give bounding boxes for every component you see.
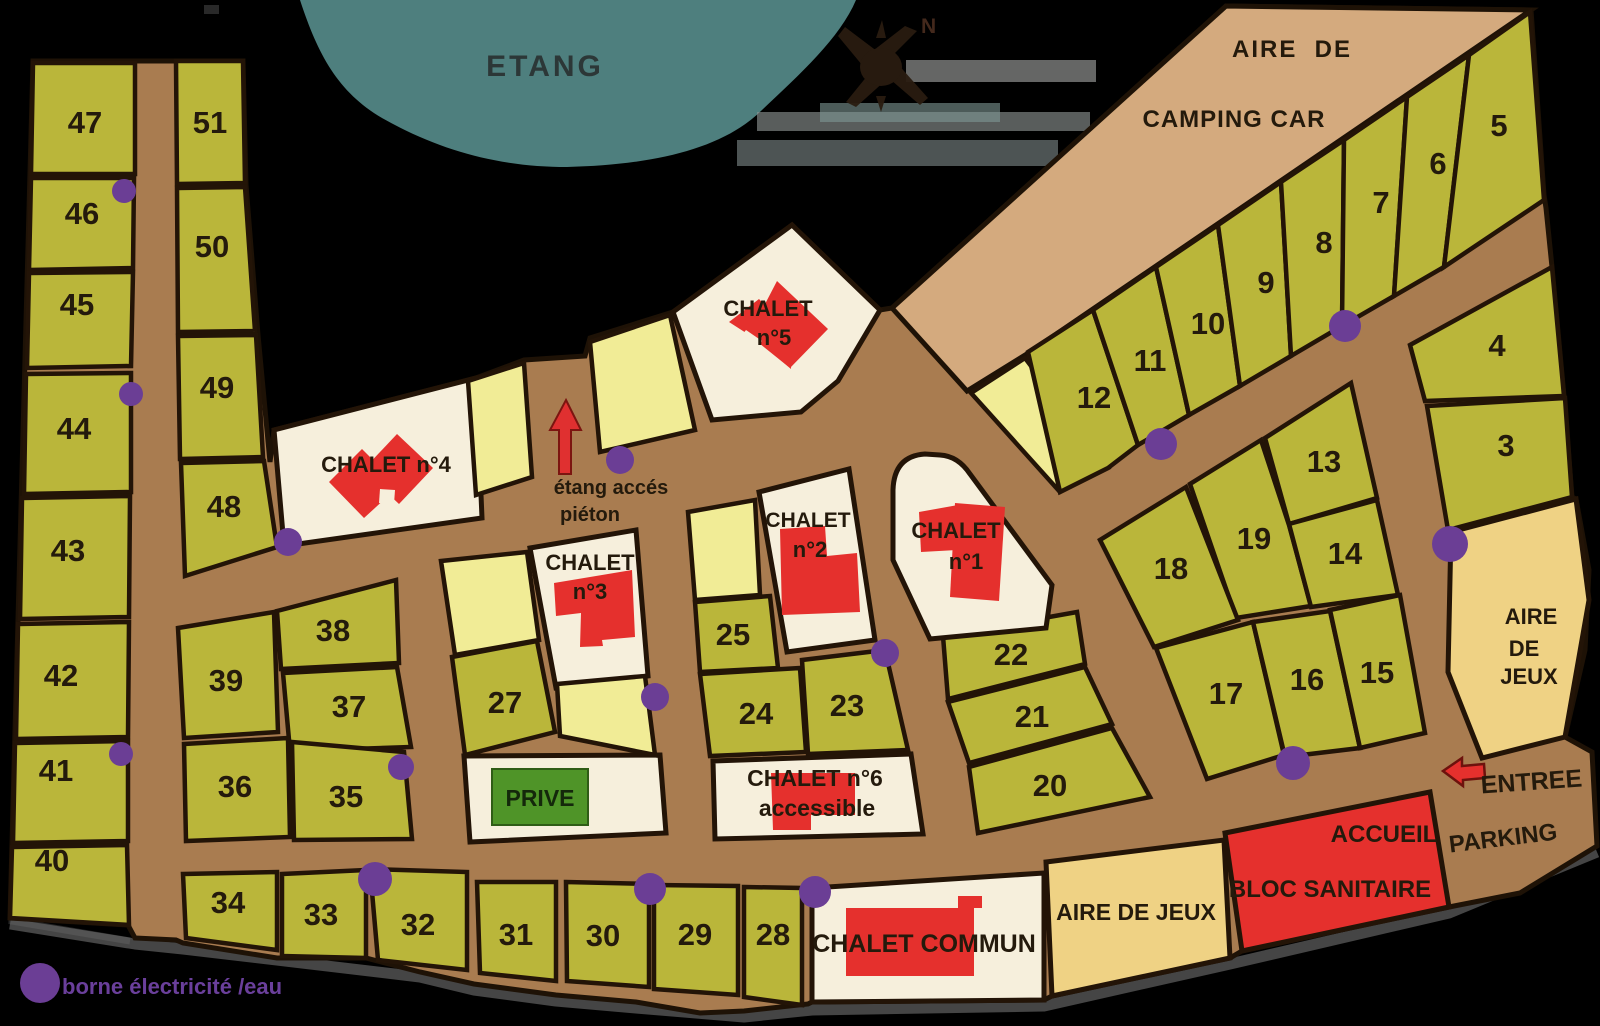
svg-text:CHALET: CHALET	[545, 550, 635, 575]
svg-text:n°2: n°2	[793, 537, 827, 562]
svg-text:CHALET: CHALET	[765, 509, 850, 532]
svg-text:5: 5	[1490, 108, 1507, 143]
svg-text:31: 31	[499, 917, 533, 952]
svg-text:42: 42	[44, 658, 78, 693]
svg-text:22: 22	[994, 637, 1028, 672]
svg-text:29: 29	[678, 917, 712, 952]
svg-text:10: 10	[1191, 306, 1225, 341]
svg-text:CHALET: CHALET	[723, 296, 813, 321]
svg-text:étang accés: étang accés	[554, 477, 669, 499]
svg-text:17: 17	[1209, 676, 1243, 711]
svg-text:41: 41	[39, 753, 73, 788]
svg-text:33: 33	[304, 897, 338, 932]
svg-text:CHALET n°4: CHALET n°4	[321, 452, 452, 477]
svg-text:CAMPING CAR: CAMPING CAR	[1143, 106, 1326, 133]
svg-text:n°1: n°1	[949, 549, 983, 574]
svg-text:n°5: n°5	[757, 325, 791, 350]
svg-text:25: 25	[716, 617, 750, 652]
svg-text:49: 49	[200, 370, 234, 405]
svg-text:45: 45	[60, 287, 94, 322]
svg-text:19: 19	[1237, 521, 1271, 556]
svg-text:18: 18	[1154, 551, 1188, 586]
svg-text:8: 8	[1315, 225, 1332, 260]
svg-text:borne électricité /eau: borne électricité /eau	[62, 974, 282, 999]
svg-text:AIRE DE JEUX: AIRE DE JEUX	[1056, 899, 1216, 925]
svg-text:44: 44	[57, 411, 92, 446]
svg-text:47: 47	[68, 105, 102, 140]
svg-text:PRIVE: PRIVE	[505, 785, 574, 811]
svg-text:23: 23	[830, 688, 864, 723]
svg-text:30: 30	[586, 918, 620, 953]
svg-text:38: 38	[316, 613, 350, 648]
svg-text:DE: DE	[1509, 636, 1540, 661]
svg-text:15: 15	[1360, 655, 1394, 690]
svg-text:CHALET: CHALET	[911, 518, 1001, 543]
svg-text:28: 28	[756, 917, 790, 952]
svg-text:27: 27	[488, 685, 522, 720]
svg-text:34: 34	[211, 885, 246, 920]
svg-text:11: 11	[1134, 343, 1167, 378]
svg-text:37: 37	[332, 689, 366, 724]
svg-text:AIRE: AIRE	[1505, 604, 1558, 629]
svg-text:12: 12	[1077, 380, 1111, 415]
svg-text:35: 35	[329, 779, 363, 814]
svg-text:piéton: piéton	[560, 504, 620, 526]
svg-text:BLOC SANITAIRE: BLOC SANITAIRE	[1229, 876, 1431, 903]
svg-text:43: 43	[51, 533, 85, 568]
svg-text:CHALET COMMUN: CHALET COMMUN	[812, 930, 1036, 958]
svg-text:6: 6	[1429, 146, 1446, 181]
svg-text:9: 9	[1257, 265, 1274, 300]
svg-text:13: 13	[1307, 444, 1341, 479]
svg-text:3: 3	[1497, 428, 1514, 463]
svg-text:40: 40	[35, 843, 69, 878]
svg-text:32: 32	[401, 907, 435, 942]
svg-text:48: 48	[207, 489, 241, 524]
svg-text:21: 21	[1015, 699, 1049, 734]
svg-text:ACCUEIL: ACCUEIL	[1331, 821, 1438, 848]
svg-text:N: N	[921, 15, 936, 38]
svg-text:46: 46	[65, 196, 99, 231]
svg-text:AIRE DE: AIRE DE	[1232, 36, 1352, 63]
svg-text:24: 24	[739, 696, 774, 731]
svg-text:20: 20	[1033, 768, 1067, 803]
svg-text:16: 16	[1290, 662, 1324, 697]
svg-text:JEUX: JEUX	[1500, 664, 1558, 689]
svg-text:n°3: n°3	[573, 579, 607, 604]
svg-text:51: 51	[193, 105, 227, 140]
svg-text:CHALET n°6: CHALET n°6	[747, 765, 883, 791]
svg-text:36: 36	[218, 769, 252, 804]
svg-text:50: 50	[195, 229, 229, 264]
svg-text:14: 14	[1328, 536, 1363, 571]
svg-text:ETANG: ETANG	[486, 50, 604, 83]
svg-text:7: 7	[1372, 185, 1389, 220]
svg-text:accessible: accessible	[759, 795, 875, 821]
svg-text:4: 4	[1488, 328, 1506, 363]
svg-text:39: 39	[209, 663, 243, 698]
